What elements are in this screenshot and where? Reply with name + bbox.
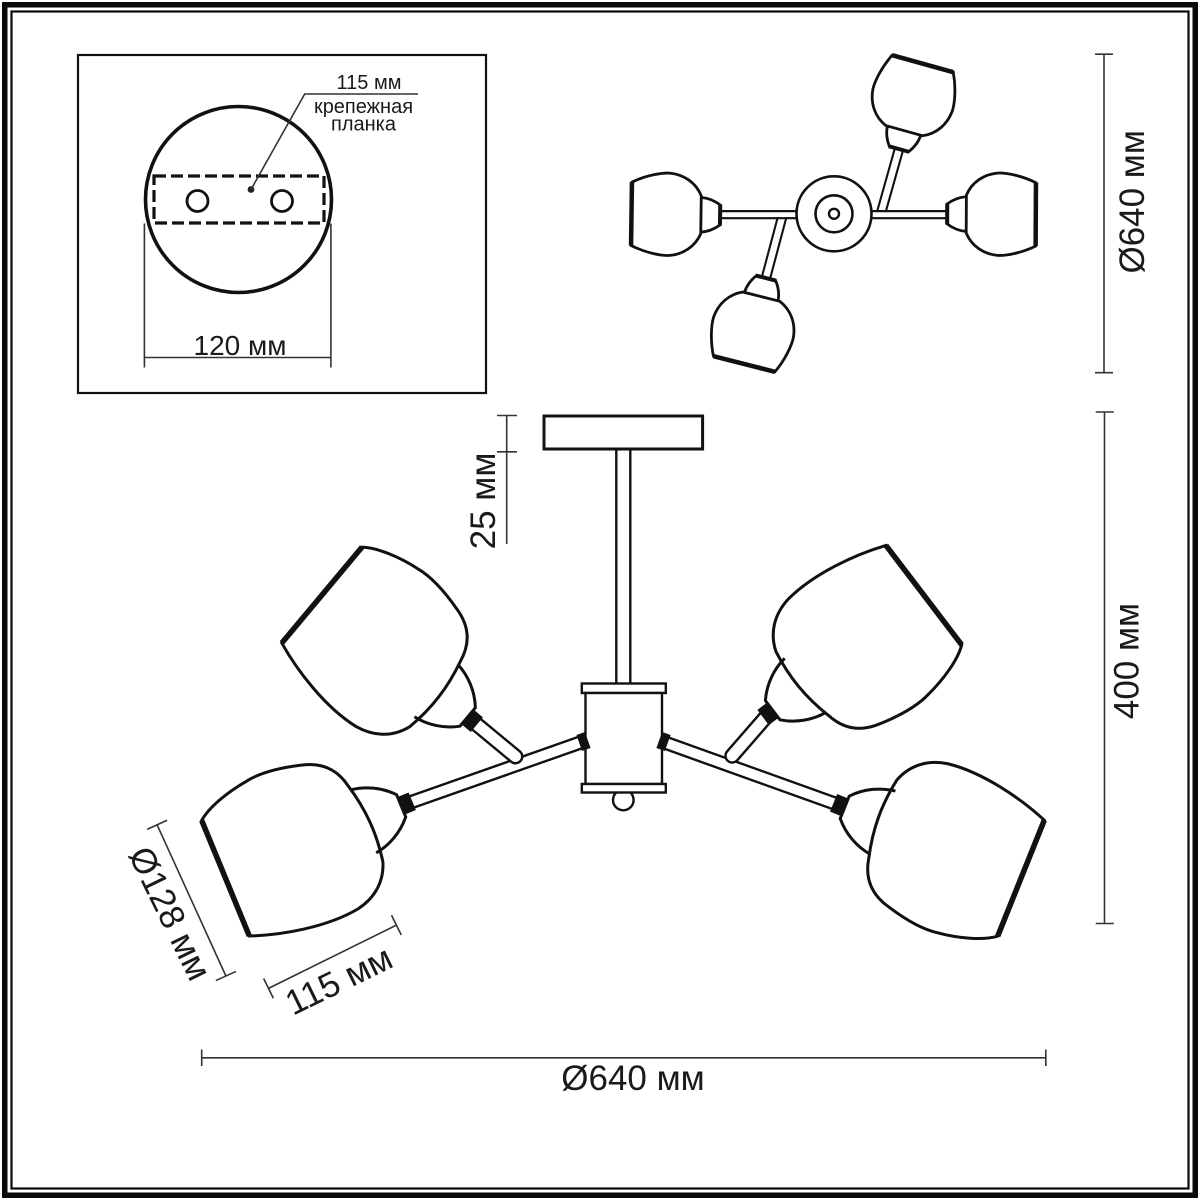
svg-text:120 мм: 120 мм xyxy=(194,330,287,361)
svg-text:планка: планка xyxy=(331,114,397,136)
svg-text:400 мм: 400 мм xyxy=(1108,603,1147,719)
svg-text:Ø128 мм: Ø128 мм xyxy=(121,841,219,987)
svg-text:Ø640 мм: Ø640 мм xyxy=(561,1059,704,1098)
svg-text:115 мм: 115 мм xyxy=(337,72,402,94)
svg-text:Ø640 мм: Ø640 мм xyxy=(1113,130,1152,273)
svg-text:115 мм: 115 мм xyxy=(279,938,398,1023)
svg-text:25 мм: 25 мм xyxy=(464,453,503,550)
